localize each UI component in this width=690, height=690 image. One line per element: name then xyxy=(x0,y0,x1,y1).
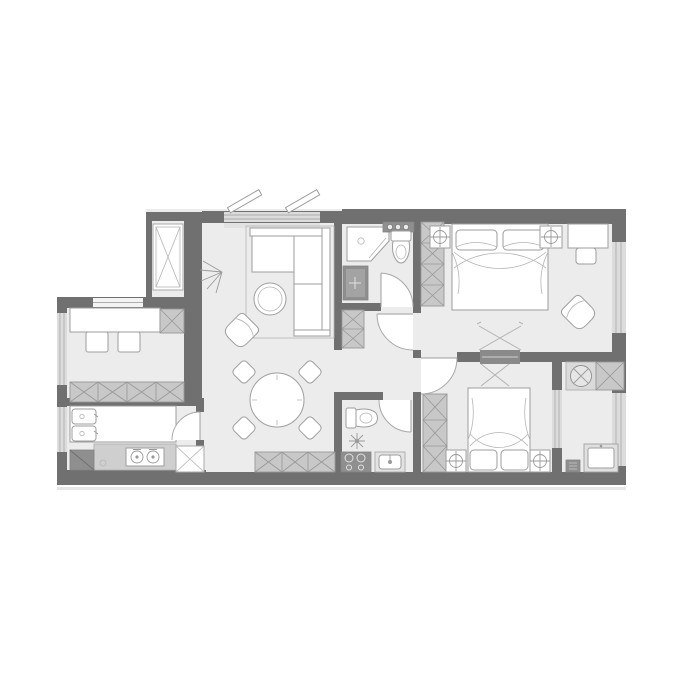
wall-bedroom1-left-stub xyxy=(413,350,421,358)
bedroom2-wardrobe xyxy=(423,394,447,472)
coffee-table xyxy=(254,283,286,315)
nightstand-1-right xyxy=(540,226,562,248)
shower-head-symbol xyxy=(349,433,365,449)
wall-bedroom2-left xyxy=(413,392,421,480)
balcony-storage-cell xyxy=(596,362,624,390)
hallway xyxy=(342,310,364,348)
entry-closet xyxy=(153,224,183,290)
window-bedroom1-right xyxy=(612,242,626,333)
nightstand-2-right xyxy=(530,450,550,472)
wall-bottom-center xyxy=(206,472,342,485)
wall-bath1-left xyxy=(334,211,342,350)
floor-plan-canvas xyxy=(0,0,690,690)
wall-bottom-right xyxy=(334,472,626,485)
pillow xyxy=(470,450,497,470)
dining-sideboard xyxy=(255,452,335,472)
desk-end-cabinet xyxy=(160,309,184,333)
pillow xyxy=(456,230,497,250)
window-kitchen-left xyxy=(57,407,67,452)
wall-closet-top xyxy=(146,212,206,221)
vanity-1 xyxy=(343,266,368,300)
bedroom1-desk xyxy=(568,224,608,248)
mop-sink-cabinet xyxy=(566,362,596,390)
wall-study-living-divider xyxy=(184,309,202,402)
kitchen-corner-cabinet xyxy=(70,450,94,470)
floor-plan-page xyxy=(0,0,690,690)
bed-1 xyxy=(452,224,548,310)
washing-machine xyxy=(584,444,618,472)
wall-bedrooms-divider-b xyxy=(520,352,612,362)
bed-2 xyxy=(468,388,530,472)
study-chair-2 xyxy=(118,332,140,352)
wall-closet-right xyxy=(184,221,202,309)
nightstand-2-left xyxy=(446,450,466,472)
wall-balcony-left-lower xyxy=(552,448,562,485)
wall-balcony-left-upper xyxy=(552,352,562,390)
wall-closet-left xyxy=(146,212,152,309)
wall-bath2-top xyxy=(342,392,383,400)
window-study-top xyxy=(93,298,143,307)
bedroom1-desk-chair xyxy=(576,248,596,264)
hall-cabinet xyxy=(342,310,364,348)
fridge-cabinet xyxy=(176,446,204,472)
pillow xyxy=(503,230,544,250)
utility-box xyxy=(566,460,580,472)
two-burner-cooktop xyxy=(126,448,164,466)
round-dining-table xyxy=(250,373,304,427)
wall-kitchen-door-stub-top xyxy=(196,406,204,412)
study-storage-row xyxy=(70,382,184,402)
vanity-2 xyxy=(375,452,405,472)
study-desk xyxy=(70,308,160,332)
wall-kitchen-door-stub-bottom xyxy=(196,440,204,446)
window-bedroom2-balcony xyxy=(552,390,562,448)
ground-shadow-line xyxy=(57,487,626,490)
nightstand-1-left xyxy=(430,226,450,248)
pillow xyxy=(501,450,528,470)
wall-bedrooms-divider-a xyxy=(457,352,480,362)
toilet-2 xyxy=(346,408,378,428)
window-study-left xyxy=(57,313,67,385)
dark-appliance xyxy=(341,452,371,472)
study-chair-1 xyxy=(86,332,108,352)
